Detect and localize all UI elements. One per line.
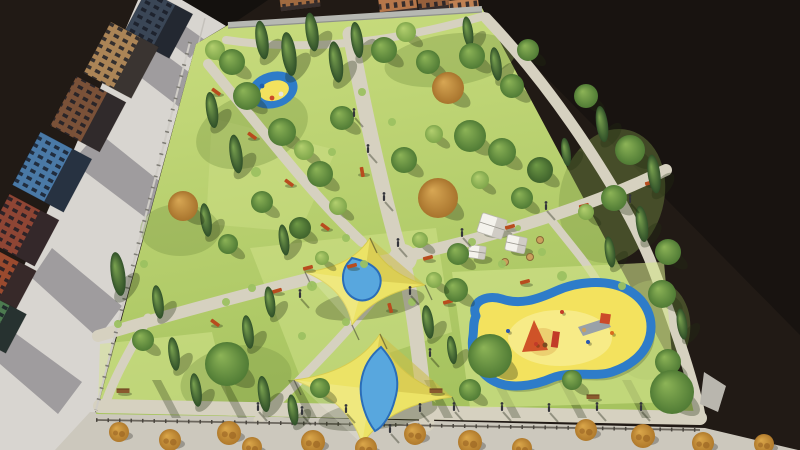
- tree-deciduous: [468, 334, 512, 378]
- shrub-texture: [579, 428, 585, 434]
- shrub-texture: [643, 435, 650, 442]
- person: [640, 402, 643, 411]
- person: [501, 402, 504, 411]
- shrub-texture: [313, 441, 320, 448]
- tree-deciduous: [601, 185, 627, 211]
- shrub-autumn: [159, 429, 181, 450]
- bush: [388, 118, 396, 126]
- park-render-canvas: [0, 0, 800, 450]
- bush: [538, 248, 546, 256]
- child: [610, 331, 614, 335]
- bush: [358, 88, 366, 96]
- bush: [328, 148, 336, 156]
- bush: [498, 260, 506, 268]
- shrub-autumn: [109, 422, 129, 442]
- shrub-texture: [415, 433, 422, 440]
- shrub-texture: [170, 439, 177, 446]
- shrub-texture: [463, 440, 469, 446]
- tree-deciduous: [329, 197, 347, 215]
- bush: [360, 260, 368, 268]
- tree-deciduous: [307, 161, 333, 187]
- shrub-texture: [758, 443, 763, 448]
- shrub-texture: [119, 431, 125, 437]
- bush: [557, 271, 567, 281]
- tree-deciduous: [218, 234, 238, 254]
- shrub-texture: [764, 443, 770, 449]
- tree-deciduous: [615, 135, 645, 165]
- person: [301, 406, 304, 415]
- person: [461, 228, 464, 237]
- child: [534, 342, 538, 346]
- tree-deciduous: [459, 379, 481, 401]
- tree-deciduous: [562, 370, 582, 390]
- bush: [307, 281, 317, 291]
- bush: [298, 332, 306, 340]
- tree-deciduous: [391, 147, 417, 173]
- sand-area: [508, 310, 612, 366]
- shrub-texture: [586, 429, 593, 436]
- tree-deciduous: [578, 204, 594, 220]
- tree-deciduous: [412, 232, 428, 248]
- picnic-table: [537, 237, 544, 244]
- tree-deciduous: [294, 140, 314, 160]
- park-aerial-render: [0, 0, 800, 450]
- tree-deciduous: [527, 157, 553, 183]
- bush: [618, 282, 626, 290]
- shrub-texture: [113, 431, 118, 436]
- person: [545, 201, 548, 210]
- tree-deciduous: [511, 187, 533, 209]
- bush: [251, 167, 261, 177]
- tree-deciduous: [268, 118, 296, 146]
- tree-deciduous: [500, 74, 524, 98]
- tree-deciduous: [655, 239, 681, 265]
- tree-autumn: [418, 178, 458, 218]
- tree-deciduous: [315, 251, 329, 265]
- child: [506, 329, 510, 333]
- tree-deciduous: [205, 342, 249, 386]
- tree-deciduous: [650, 370, 694, 414]
- tree-deciduous: [396, 22, 416, 42]
- tree-deciduous: [233, 82, 261, 110]
- play-equipment: [260, 84, 265, 89]
- play-equipment: [582, 328, 586, 332]
- tree-deciduous: [330, 106, 354, 130]
- shrub-texture: [696, 441, 702, 447]
- wood-bench: [430, 389, 443, 393]
- person: [596, 402, 599, 411]
- shrub-autumn: [404, 423, 426, 445]
- person: [409, 286, 412, 295]
- person: [548, 403, 551, 412]
- play-equipment: [279, 92, 284, 97]
- tree-deciduous: [426, 272, 442, 288]
- person: [367, 144, 370, 153]
- tree-deciduous: [471, 171, 489, 189]
- bush: [114, 320, 122, 328]
- child: [560, 310, 564, 314]
- play-equipment: [270, 96, 275, 101]
- play-equipment: [543, 343, 548, 348]
- shrub-texture: [306, 440, 312, 446]
- person: [353, 108, 356, 117]
- bush: [342, 234, 350, 242]
- person: [419, 403, 422, 412]
- bush: [515, 225, 521, 231]
- tree-deciduous: [251, 191, 273, 213]
- bush: [248, 284, 256, 292]
- tree-deciduous: [219, 49, 245, 75]
- wood-bench: [117, 389, 130, 393]
- play-equipment: [600, 313, 611, 324]
- tree-deciduous: [447, 243, 469, 265]
- person: [345, 404, 348, 413]
- shrub-texture: [163, 438, 169, 444]
- tree-deciduous: [454, 120, 486, 152]
- shrub-autumn: [631, 424, 655, 448]
- tree-deciduous: [574, 84, 598, 108]
- tree-deciduous: [310, 378, 330, 398]
- person: [429, 348, 432, 357]
- tree-deciduous: [371, 37, 397, 63]
- person: [389, 424, 392, 433]
- shrub-texture: [703, 442, 710, 449]
- bush: [342, 318, 350, 326]
- bush: [140, 260, 148, 268]
- child: [586, 340, 590, 344]
- tree-deciduous: [132, 329, 154, 351]
- tree-deciduous: [648, 280, 676, 308]
- tree-deciduous: [459, 43, 485, 69]
- shrub-autumn: [575, 419, 597, 441]
- tree-autumn: [168, 191, 198, 221]
- person: [397, 238, 400, 247]
- person: [629, 194, 632, 203]
- wood-bench: [587, 395, 600, 399]
- shrub-texture: [229, 432, 236, 439]
- shrub-texture: [470, 441, 477, 448]
- person: [257, 402, 260, 411]
- person: [299, 289, 302, 298]
- bush: [222, 298, 230, 306]
- shrub-texture: [636, 434, 642, 440]
- tree-deciduous: [416, 50, 440, 74]
- person: [383, 192, 386, 201]
- picnic-table: [527, 254, 534, 261]
- shrub-texture: [222, 431, 228, 437]
- tree-deciduous: [425, 125, 443, 143]
- shrub-autumn: [217, 421, 241, 445]
- person: [453, 402, 456, 411]
- tree-deciduous: [488, 138, 516, 166]
- shrub-texture: [408, 432, 414, 438]
- tree-autumn: [432, 72, 464, 104]
- tree-deciduous: [517, 39, 539, 61]
- tree-deciduous: [289, 217, 311, 239]
